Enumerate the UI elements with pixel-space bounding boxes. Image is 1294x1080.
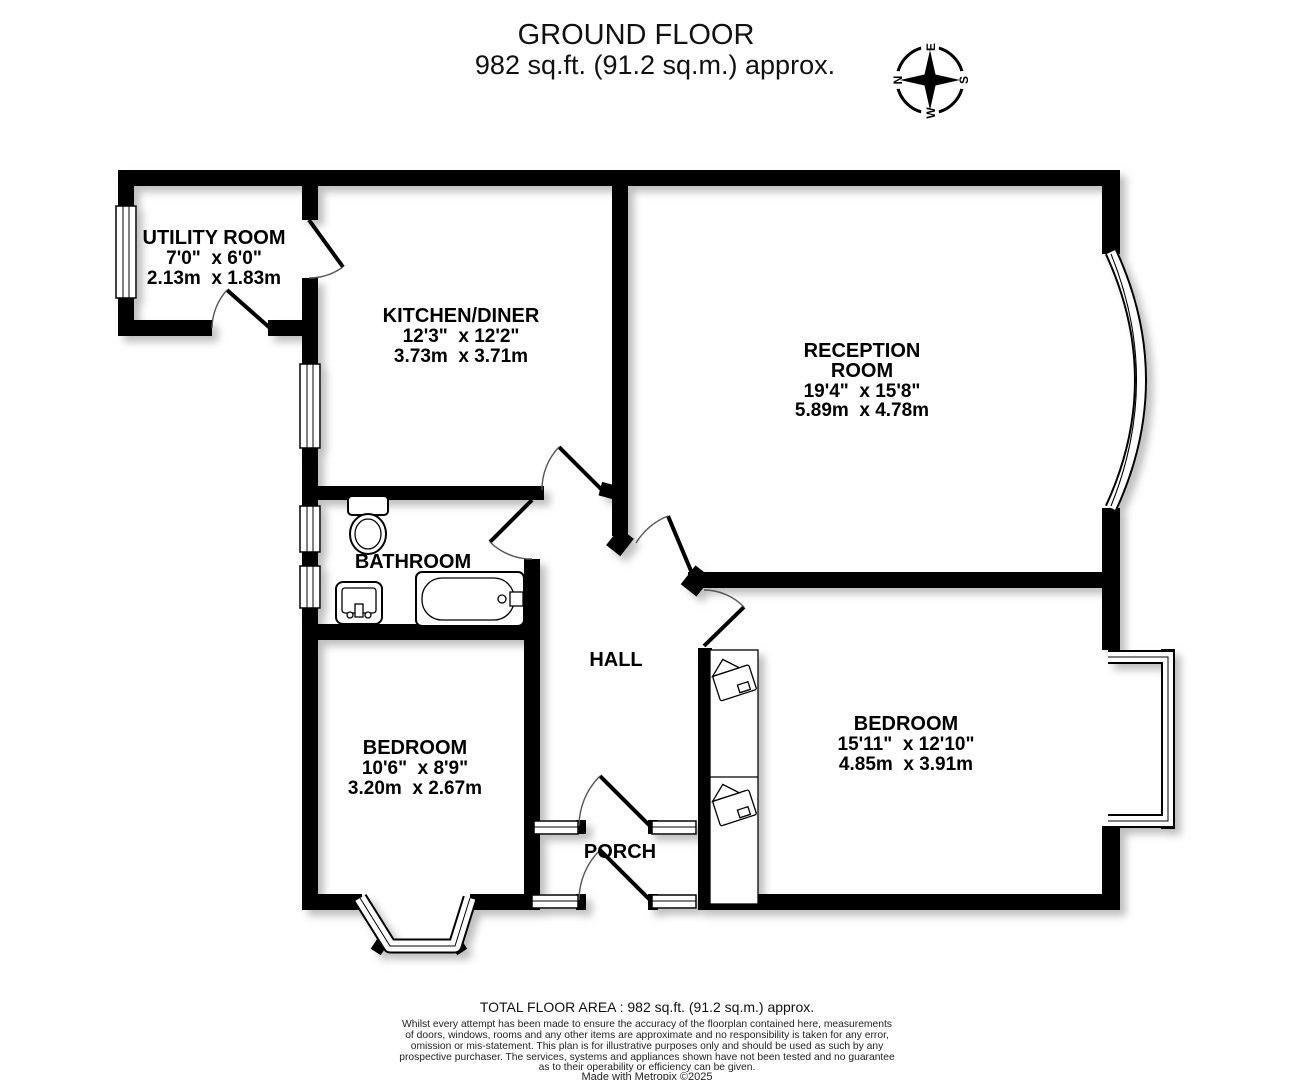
disclaimer-line: Whilst every attempt has been made to en…	[402, 1019, 892, 1030]
compass-icon: N E S W	[888, 38, 972, 122]
kitchen-dim-metric: 3.73m x 3.71m	[394, 346, 528, 367]
disclaimer-line: omission or mis-statement. This plan is …	[411, 1041, 884, 1052]
reception-name-1: RECEPTION	[804, 340, 921, 362]
room-label-reception: RECEPTION ROOM 19'4" x 15'8" 5.89m x 4.7…	[795, 340, 929, 421]
bathtub-icon	[416, 572, 524, 626]
reception-name-2: ROOM	[831, 360, 893, 382]
room-label-bathroom: BATHROOM	[355, 551, 471, 573]
footer-block: TOTAL FLOOR AREA : 982 sq.ft. (91.2 sq.m…	[399, 999, 895, 1080]
bedroom-front-dim-imperial: 10'6" x 8'9"	[362, 758, 468, 779]
door-bedroom-rear	[704, 590, 744, 646]
door-reception-hall	[636, 516, 694, 578]
room-label-bedroom-rear: BEDROOM 15'11" x 12'10" 4.85m x 3.91m	[838, 713, 975, 775]
floorplan-page: UTILITY ROOM 7'0" x 6'0" 2.13m x 1.83m K…	[0, 0, 1294, 1080]
metropix-credit: Made with Metropix ©2025	[581, 1071, 712, 1080]
bathroom-name: BATHROOM	[355, 551, 471, 573]
compass-e: E	[924, 43, 938, 51]
bedroom-rear-dim-imperial: 15'11" x 12'10"	[838, 734, 975, 755]
bedroom-front-name: BEDROOM	[363, 737, 467, 759]
utility-dim-imperial: 7'0" x 6'0"	[166, 248, 262, 269]
door-hall-porch	[579, 776, 650, 826]
kitchen-name: KITCHEN/DINER	[383, 305, 540, 327]
page-title: GROUND FLOOR	[518, 19, 755, 51]
room-label-hall: HALL	[589, 649, 642, 671]
utility-dim-metric: 2.13m x 1.83m	[147, 268, 281, 289]
window-bathroom-upper	[300, 506, 320, 552]
page-subtitle: 982 sq.ft. (91.2 sq.m.) approx.	[475, 50, 835, 80]
bay-window-bedroom-rear	[1108, 657, 1168, 821]
bedroom-rear-name: BEDROOM	[854, 713, 958, 735]
room-label-porch: PORCH	[584, 841, 656, 863]
window-utility	[116, 206, 136, 298]
reception-dim-metric: 5.89m x 4.78m	[795, 400, 929, 421]
door-utility-kitchen	[309, 220, 343, 278]
kitchen-dim-imperial: 12'3" x 12'2"	[403, 326, 520, 347]
porch-name: PORCH	[584, 841, 656, 863]
reception-dim-imperial: 19'4" x 15'8"	[804, 381, 921, 402]
door-kitchen-hall	[542, 447, 602, 490]
room-label-utility: UTILITY ROOM 7'0" x 6'0" 2.13m x 1.83m	[143, 227, 286, 289]
total-floor-area: TOTAL FLOOR AREA : 982 sq.ft. (91.2 sq.m…	[480, 999, 814, 1015]
title-block: GROUND FLOOR 982 sq.ft. (91.2 sq.m.) app…	[475, 19, 835, 80]
room-labels: UTILITY ROOM 7'0" x 6'0" 2.13m x 1.83m K…	[143, 227, 975, 863]
bay-window-bedroom-front	[360, 898, 470, 946]
compass-w: W	[924, 107, 938, 119]
floorplan-svg: UTILITY ROOM 7'0" x 6'0" 2.13m x 1.83m K…	[0, 0, 1294, 1080]
room-label-bedroom-front: BEDROOM 10'6" x 8'9" 3.20m x 2.67m	[348, 737, 482, 799]
door-utility-back	[212, 290, 270, 328]
door-bathroom	[490, 500, 532, 559]
window-kitchen	[300, 364, 320, 448]
bedroom-front-dim-metric: 3.20m x 2.67m	[348, 778, 482, 799]
toilet-icon	[348, 496, 388, 554]
disclaimer-line: of doors, windows, rooms and any other i…	[405, 1030, 889, 1041]
compass-n: N	[891, 76, 905, 85]
wardrobe-bedroom-rear	[709, 650, 758, 904]
bedroom-rear-dim-metric: 4.85m x 3.91m	[839, 754, 973, 775]
hall-name: HALL	[589, 649, 642, 671]
compass-s: S	[957, 76, 971, 84]
bay-window-reception	[1111, 252, 1141, 508]
utility-name: UTILITY ROOM	[143, 227, 286, 249]
room-label-kitchen: KITCHEN/DINER 12'3" x 12'2" 3.73m x 3.71…	[383, 305, 540, 367]
sink-icon	[336, 582, 382, 624]
window-bathroom-lower	[300, 566, 320, 608]
